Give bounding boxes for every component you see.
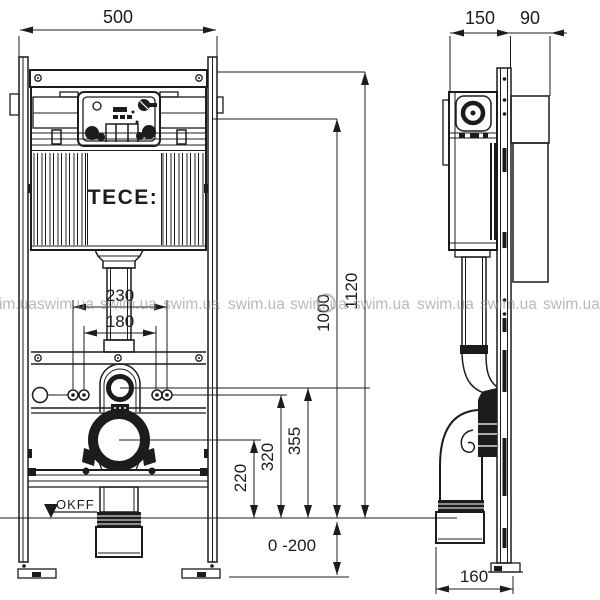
watermark-text: swim.ua [543, 296, 600, 313]
drain-elbow [436, 410, 497, 543]
watermark-text: swim.ua [417, 296, 474, 313]
watermark-text: swim.ua [228, 296, 285, 313]
dim-depths: 150 90 [450, 8, 567, 96]
dim-150-label: 150 [465, 8, 495, 28]
drain-outlet [82, 414, 156, 475]
floor-level-marker: OKFF [44, 497, 97, 518]
drain-pipe [96, 487, 142, 557]
wall-bracket [511, 96, 549, 282]
cistern-ribs-left [34, 153, 86, 245]
watermark-text: swim.ua [163, 296, 220, 313]
dim-180-label: 180 [106, 312, 134, 331]
adjustable-feet [18, 564, 220, 578]
watermark-text: swim.ua [37, 296, 94, 313]
watermark-layer: swim.ua swim.ua swim.ua swim.ua swim.ua … [0, 295, 600, 314]
dim-320-label: 320 [258, 443, 277, 471]
floor-level-label: OKFF [56, 497, 95, 512]
watermark-text: swim.ua [353, 296, 410, 313]
watermark-text: swim.ua [290, 296, 347, 313]
dim-220-label: 220 [231, 464, 250, 492]
wall-anchor-tab-left [10, 94, 19, 115]
elbow-hook-detail [461, 430, 474, 452]
dim-0-200-label: 0 -200 [268, 536, 316, 555]
cistern-ribs-right [163, 153, 203, 245]
dim-160-label: 160 [460, 567, 488, 586]
bottom-cross-rail [28, 468, 208, 487]
watermark-text: swim.ua [480, 296, 537, 313]
wall-anchor-tab-right [217, 97, 223, 113]
lid-latch-left [52, 130, 61, 144]
installation-drawing: 500 [0, 0, 600, 600]
cistern-side [443, 92, 497, 257]
dim-leg-adjustment: 0 -200 [229, 522, 349, 577]
dim-90-label: 90 [520, 8, 540, 28]
fixing-bolt-row [33, 388, 288, 403]
front-view: 500 [0, 7, 457, 578]
dim-overall-width: 500 [19, 7, 217, 57]
flush-unit [78, 92, 160, 146]
dim-500-label: 500 [103, 7, 133, 27]
flush-pipe-side [460, 257, 497, 412]
watermark-text: swim.ua [0, 296, 37, 313]
watermark-text: swim.ua [100, 296, 157, 313]
drain-sleeve-side [436, 512, 484, 543]
top-cross-rail [30, 70, 207, 87]
flush-pipe-outlet [104, 340, 134, 352]
lid-latch-right [177, 130, 186, 144]
brand-logo: TECE: [88, 186, 159, 209]
dim-355-label: 355 [285, 427, 304, 455]
